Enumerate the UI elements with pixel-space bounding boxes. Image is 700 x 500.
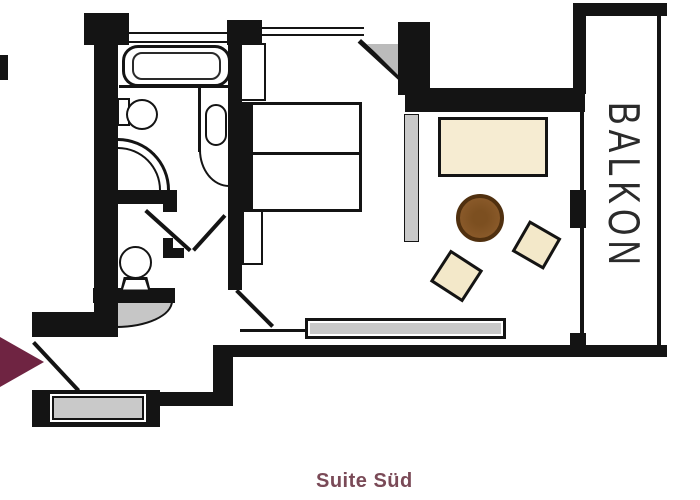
bathtub-inner-rim	[132, 52, 221, 80]
vanity-counter-arc	[199, 150, 229, 187]
wall-pillar-top-right	[398, 22, 430, 95]
wardrobe-icon	[404, 114, 419, 242]
radiator-icon	[305, 318, 506, 339]
window-band-bathroom	[129, 32, 229, 43]
bed-divider-line	[253, 152, 360, 155]
floor-plan: BALKON Suite Süd	[0, 0, 700, 500]
nightstand-icon	[240, 43, 266, 101]
wall-pillar-top-left	[84, 13, 129, 45]
double-bed-icon	[238, 102, 362, 212]
stool-icon-1	[430, 249, 483, 302]
door-niche	[242, 210, 263, 265]
coffee-table-icon	[456, 194, 504, 242]
door-swing-gray	[116, 301, 173, 328]
toilet-tank-inner	[123, 280, 148, 290]
window-band-bedroom	[262, 27, 364, 36]
sofa-icon	[438, 117, 548, 177]
balcony-label: BALKON	[601, 102, 646, 270]
stool-icon-2	[511, 220, 561, 270]
toilet-tank-icon	[120, 277, 151, 292]
wall-threshold-line	[240, 329, 307, 332]
wc-door-leaf-2	[192, 214, 226, 252]
wall-below-shower-stub	[163, 190, 177, 212]
balcony-wall-left-top	[573, 14, 586, 94]
plan-caption: Suite Süd	[316, 470, 413, 493]
entrance-door-leaf	[32, 341, 80, 392]
balcony-wall-top	[573, 3, 667, 16]
vanity-edge-line	[198, 85, 201, 152]
wall-bottom-main	[213, 345, 667, 357]
balcony-wall-segment-a	[570, 190, 586, 228]
bathtub-deck-line	[119, 85, 233, 88]
balcony-railing-line-right	[657, 16, 661, 345]
wall-left-foot	[32, 312, 97, 337]
wall-pillar-mid	[227, 20, 262, 45]
vanity-basin-icon	[205, 104, 227, 146]
wall-wc-stub-horizontal	[163, 248, 184, 258]
bedroom-door-leaf	[235, 289, 274, 328]
toilet-bowl-icon	[119, 246, 152, 279]
wall-edge-mark	[0, 55, 8, 80]
wall-band-living-top	[405, 88, 585, 112]
sideboard-icon	[52, 396, 144, 420]
wall-hall-bottom	[150, 392, 233, 406]
washbasin-icon	[126, 99, 158, 130]
